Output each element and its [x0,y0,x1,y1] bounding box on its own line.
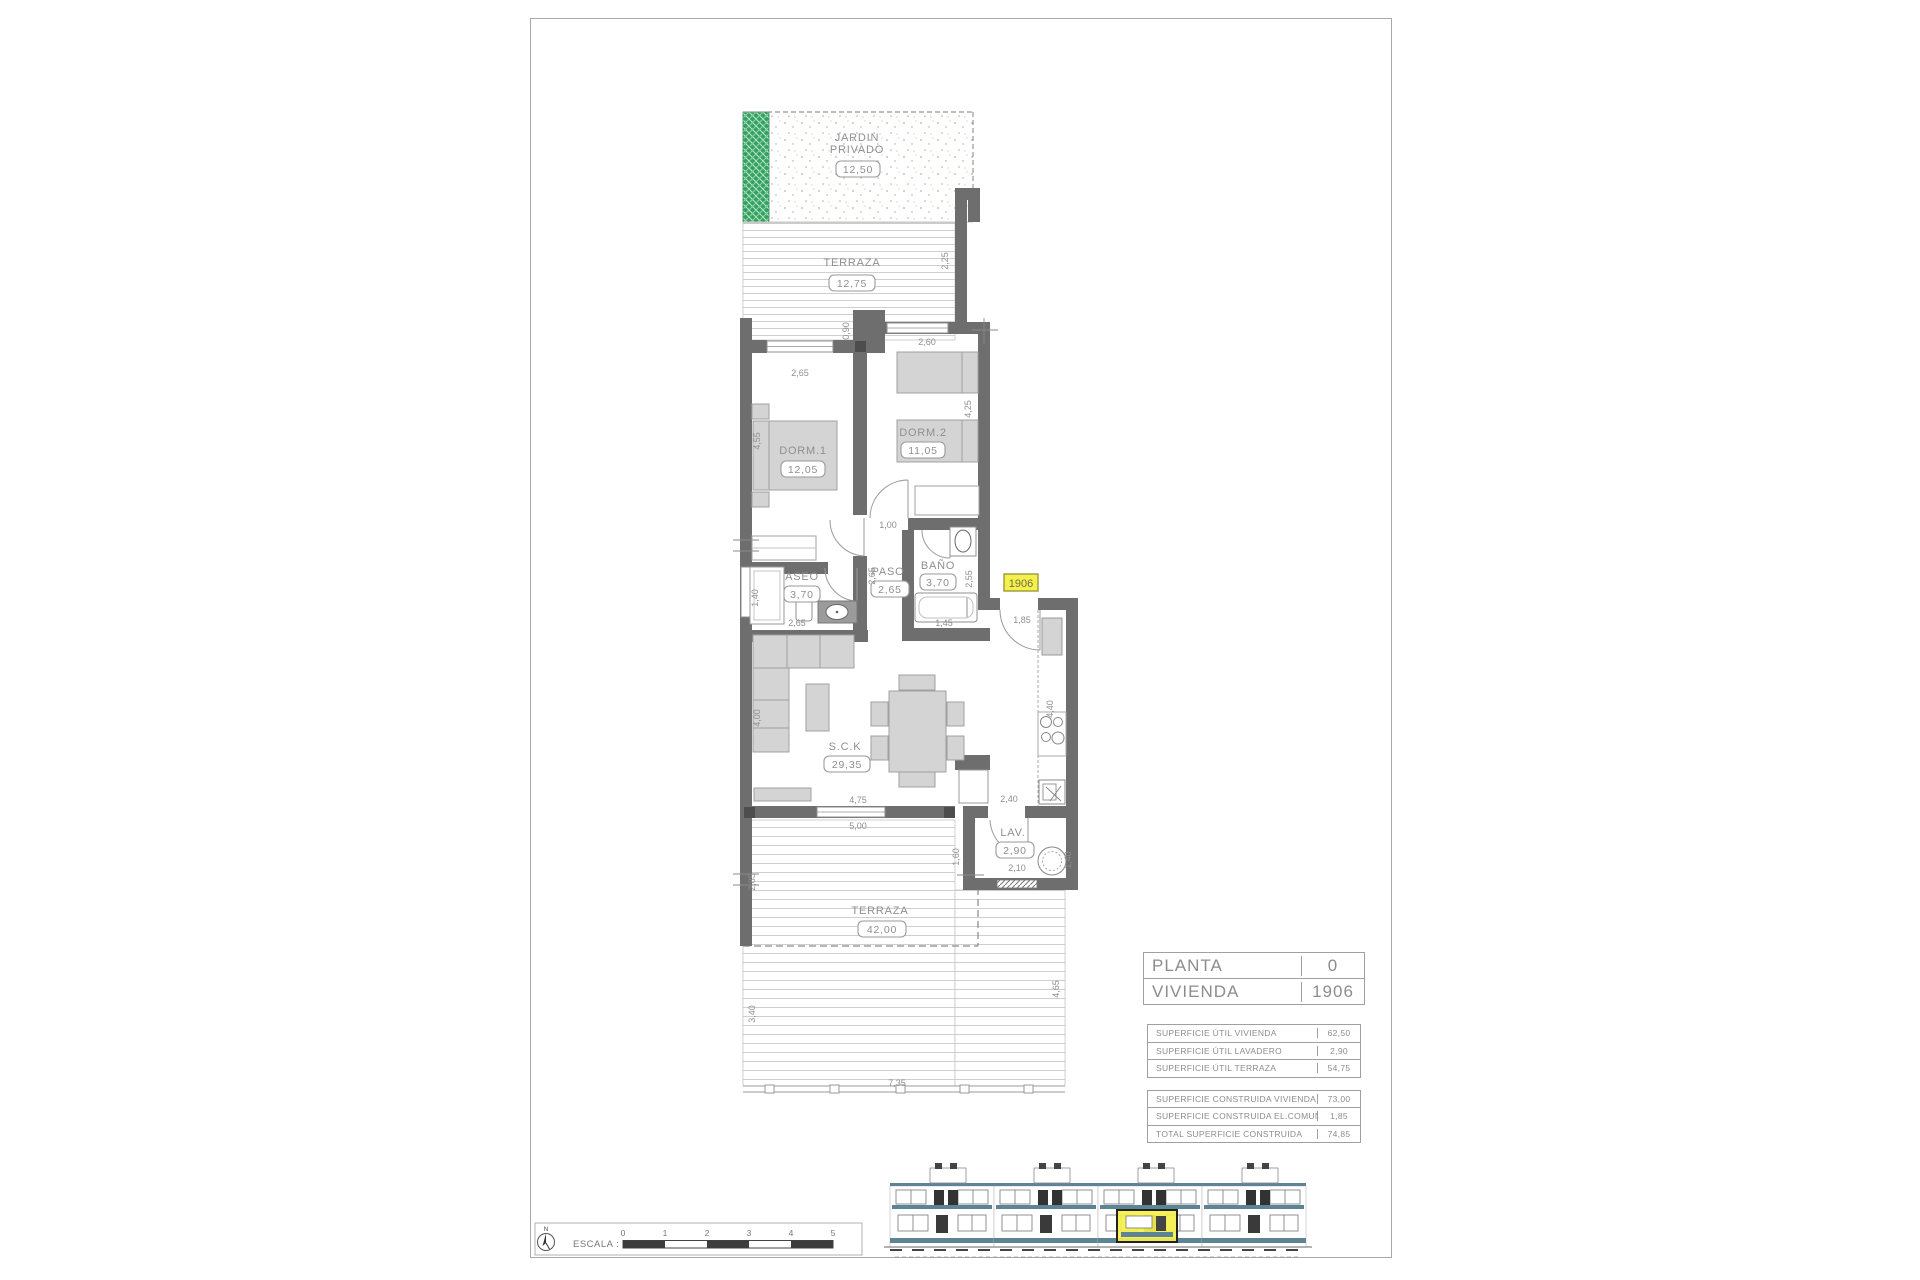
elevation-highlight-unit [1117,1210,1177,1242]
cabinet [959,770,988,803]
dim: 2,60 [918,337,936,347]
dim: 1,85 [1013,615,1031,625]
table-row: SUPERFICIE CONSTRUIDA VIVIENDA 73,00 [1148,1091,1360,1109]
north-label: N [544,1226,549,1233]
area-aseo: 3,70 [790,589,814,601]
table-row: SUPERFICIE CONSTRUIDA EL.COMUNES 1,85 [1148,1108,1360,1126]
scale-tick: 2 [705,1228,710,1238]
area-dorm1: 12,05 [788,464,818,476]
room-label-lav: LAV. [1000,827,1025,839]
coffee-table [806,684,829,731]
dim: 0,90 [841,322,851,340]
dim: 4,55 [752,432,762,450]
dim: 2,65 [867,567,877,585]
area-bano: 3,70 [926,577,950,589]
dim: 1,45 [935,618,953,628]
area-terraza-top: 12,75 [837,278,867,290]
area-lav: 2,90 [1003,845,1027,857]
dim: 3,40 [747,1005,757,1023]
dim: 4,65 [1051,980,1061,998]
built-row-label: SUPERFICIE CONSTRUIDA VIVIENDA [1148,1094,1318,1104]
dim: 2,10 [1008,863,1026,873]
built-row-value: 73,00 [1318,1094,1360,1104]
bed-single [897,352,978,393]
section-marker [744,807,755,818]
util-row-label: SUPERFICIE ÚTIL VIVIENDA [1148,1028,1318,1038]
room-label-terraza-bottom: TERRAZA [852,905,909,917]
dim: 2,65 [788,618,806,628]
room-label-dorm1: DORM.1 [779,445,827,457]
table-row: TOTAL SUPERFICIE CONSTRUIDA 74,85 [1148,1126,1360,1143]
planta-label: PLANTA [1144,956,1302,976]
dim: 5,00 [849,821,867,831]
table-row: VIVIENDA 1906 [1144,979,1364,1004]
unit-number-tag: 1906 [1004,574,1038,591]
built-row-label: SUPERFICIE CONSTRUIDA EL.COMUNES [1148,1111,1318,1121]
scale-bar-box: N ESCALA : 0 1 2 3 4 5 [535,1223,862,1255]
util-row-label: SUPERFICIE ÚTIL LAVADERO [1148,1046,1318,1056]
scale-tick: 5 [831,1228,836,1238]
area-paso: 2,65 [878,584,902,596]
scale-tick: 1 [663,1228,668,1238]
info-panel: PLANTA 0 VIVIENDA 1906 SUPERFICIE ÚTIL V… [1143,952,1365,1143]
dim: 7,35 [888,1078,906,1088]
area-dorm2: 11,05 [908,445,938,457]
util-row-value: 54,75 [1318,1063,1360,1073]
dim: 4,40 [1045,700,1055,718]
section-marker [944,807,955,818]
floor-plan: JARDIN PRIVADO 12,50 TERRAZA 12,75 DORM.… [0,0,1920,1280]
dining-table [889,691,946,772]
building-elevation [884,1163,1312,1257]
vivienda-value: 1906 [1302,982,1364,1002]
dim: 1,60 [951,848,961,866]
vivienda-label: VIVIENDA [1144,982,1302,1002]
table-row: SUPERFICIE ÚTIL TERRAZA 54,75 [1148,1060,1360,1077]
area-jardin: 12,50 [843,164,873,176]
dim: 4,25 [963,400,973,418]
room-label-jardin2: PRIVADO [830,144,884,156]
room-label-jardin: JARDIN [835,132,880,144]
built-areas-table: SUPERFICIE CONSTRUIDA VIVIENDA 73,00 SUP… [1147,1090,1361,1144]
table-row: PLANTA 0 [1144,953,1364,979]
dim: 4,75 [849,795,867,805]
scale-tick: 0 [621,1228,626,1238]
room-label-terraza-top: TERRAZA [824,257,881,269]
room-label-sck: S.C.K [829,741,862,753]
area-terraza-bottom: 42,00 [867,924,897,936]
tv-unit [754,788,811,801]
built-row-label: TOTAL SUPERFICIE CONSTRUIDA [1148,1129,1318,1139]
table-row: SUPERFICIE ÚTIL VIVIENDA 62,50 [1148,1025,1360,1043]
scale-tick: 3 [747,1228,752,1238]
dim: 2,65 [791,368,809,378]
util-row-label: SUPERFICIE ÚTIL TERRAZA [1148,1063,1318,1073]
room-label-aseo: ASEO [785,571,819,583]
dim: 1,40 [750,589,760,607]
sofa [753,635,854,668]
table-row: SUPERFICIE ÚTIL LAVADERO 2,90 [1148,1043,1360,1061]
room-label-bano: BAÑO [921,559,955,572]
util-row-value: 2,90 [1318,1046,1360,1056]
dim: 2,25 [940,252,950,270]
dim: 2,55 [964,570,974,588]
built-row-value: 1,85 [1318,1111,1360,1121]
util-areas-table: SUPERFICIE ÚTIL VIVIENDA 62,50 SUPERFICI… [1147,1024,1361,1078]
area-sck: 29,35 [832,759,862,771]
dim: 4,00 [752,709,762,727]
desk [915,486,979,515]
unit-header-table: PLANTA 0 VIVIENDA 1906 [1143,952,1365,1005]
room-label-dorm2: DORM.2 [899,427,947,439]
dim: 2,40 [1000,794,1018,804]
dim: 1,00 [879,520,897,530]
built-row-value: 74,85 [1318,1129,1360,1139]
scale-tick: 4 [789,1228,794,1238]
planta-value: 0 [1302,956,1364,976]
scale-label: ESCALA : [573,1239,619,1250]
garden-hedge [743,112,769,222]
util-row-value: 62,50 [1318,1028,1360,1038]
dim: 2,85 [747,873,757,891]
section-marker [855,341,866,352]
dim: 1,40 [1063,851,1073,869]
unit-number: 1906 [1009,578,1033,590]
fridge [1042,618,1062,655]
terraza-bottom-deck [743,820,1065,1093]
